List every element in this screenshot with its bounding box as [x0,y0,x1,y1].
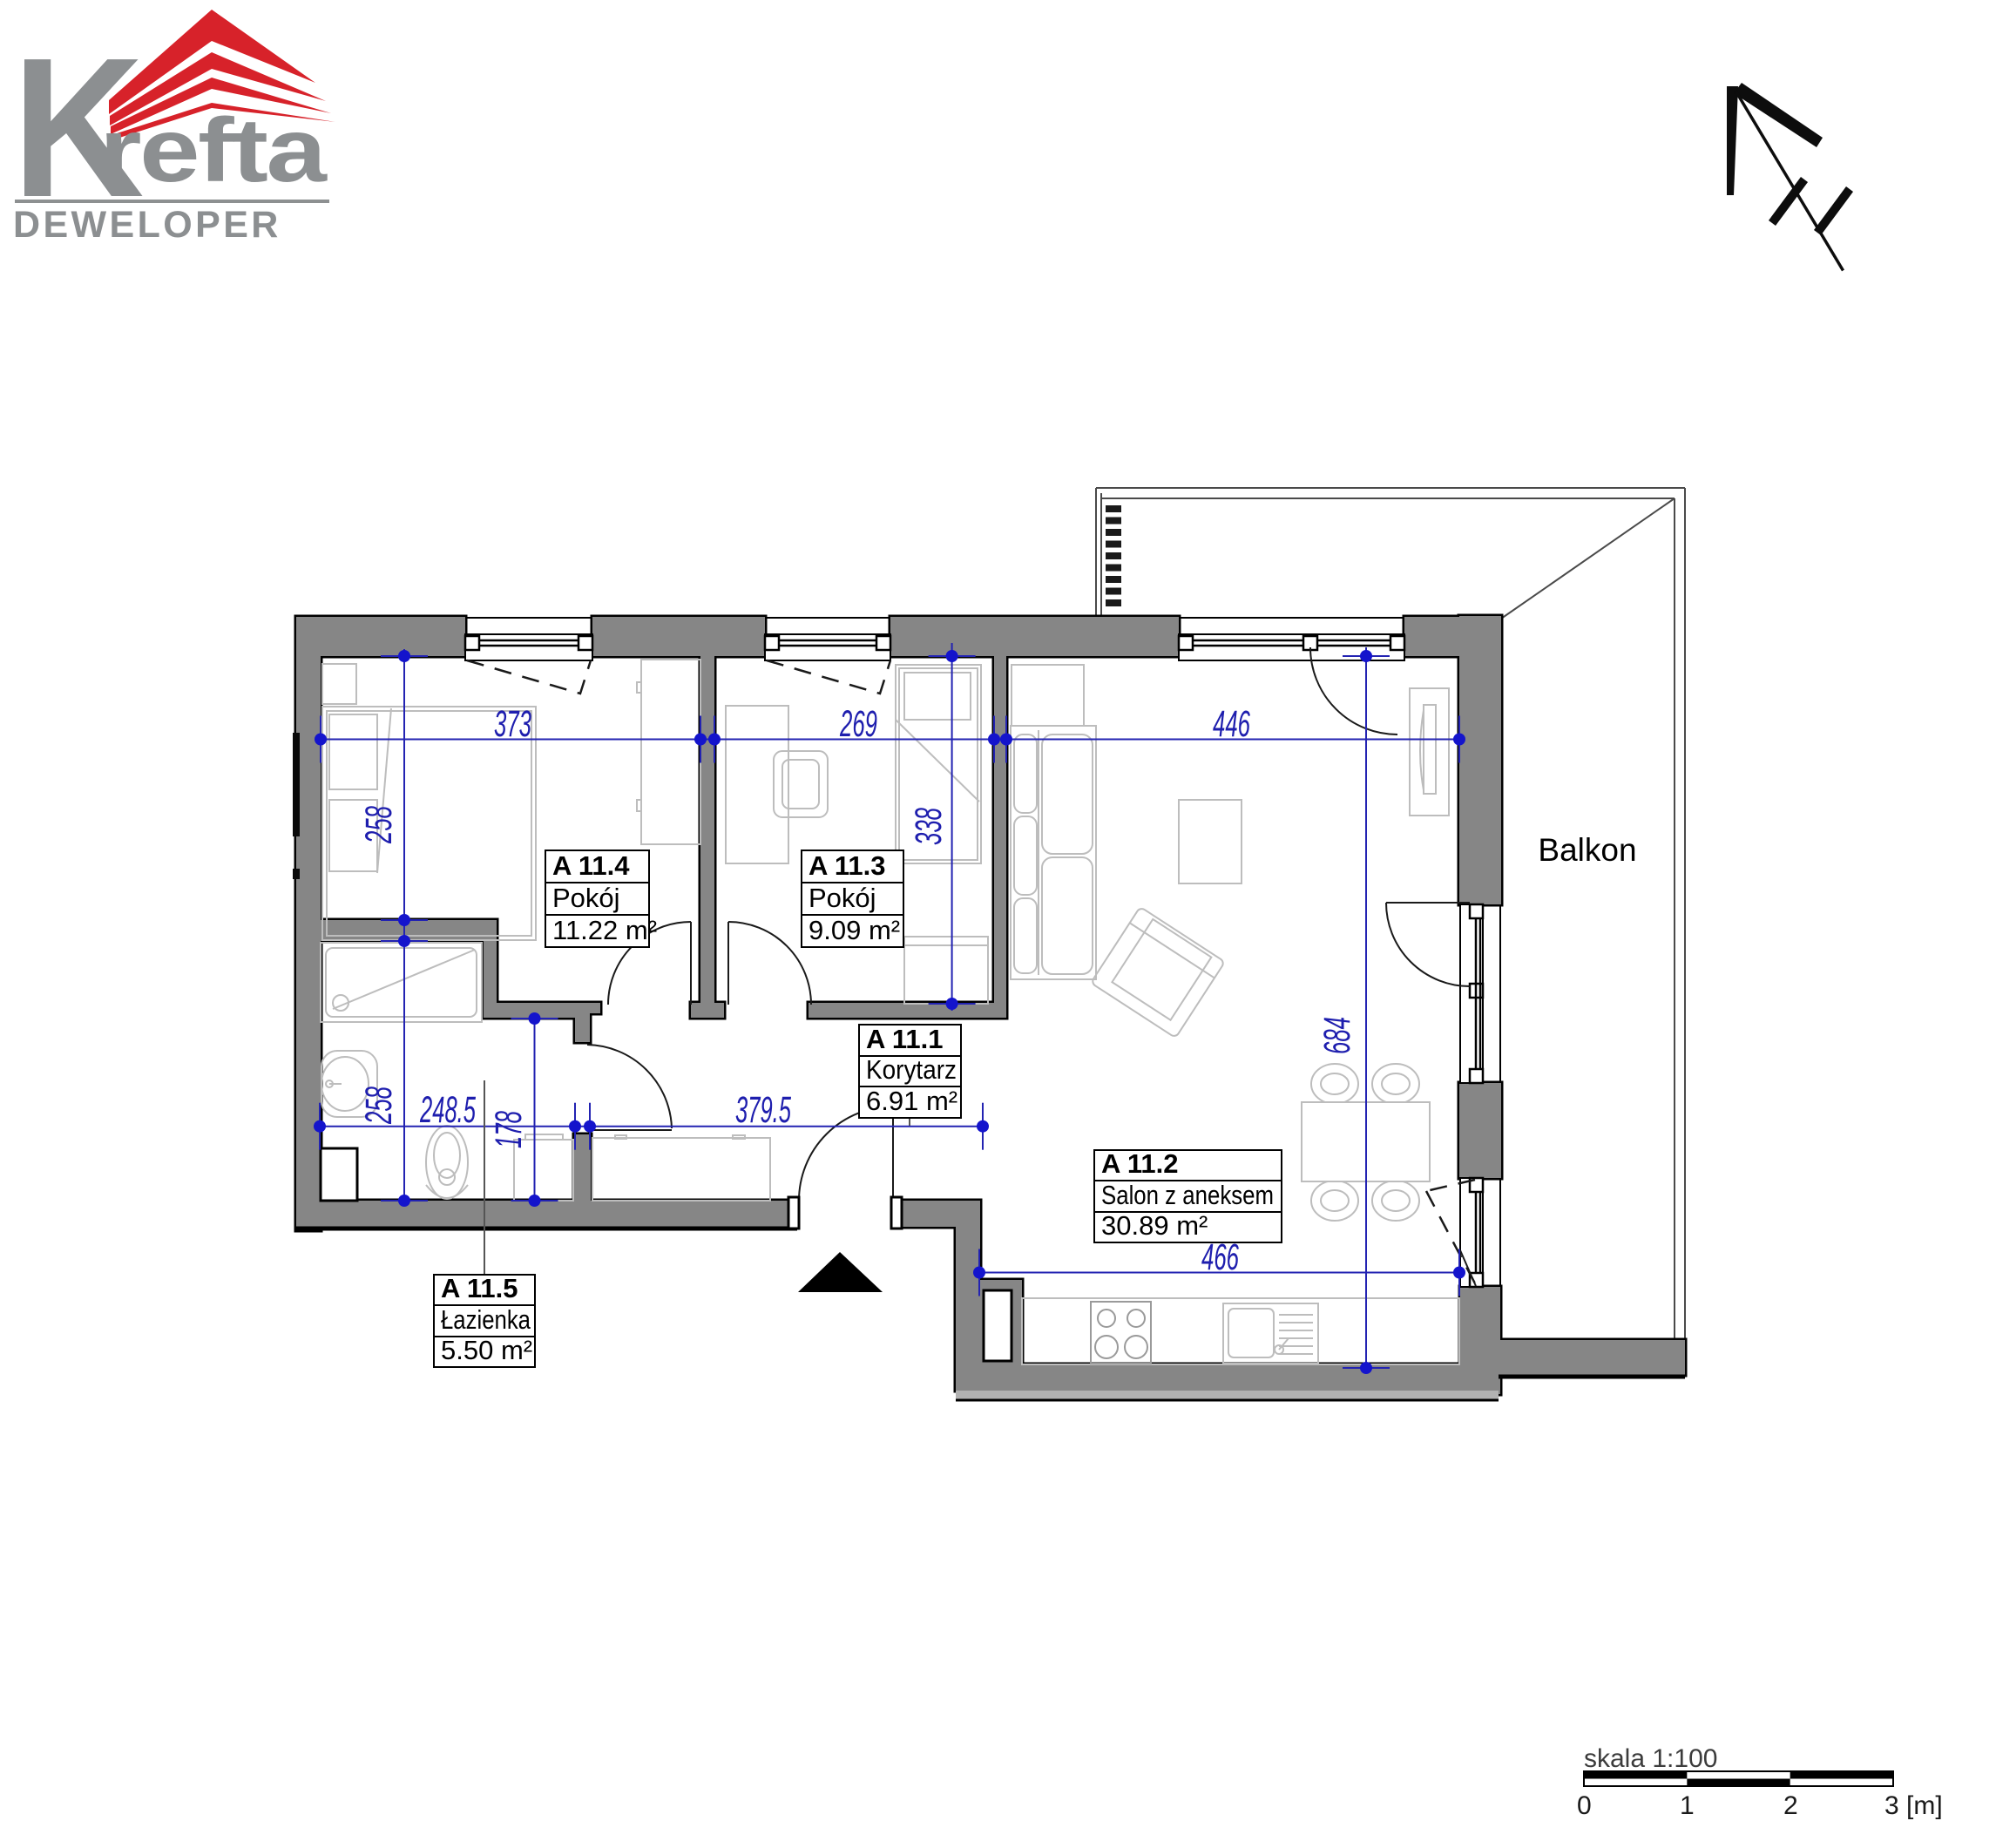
svg-text:A 11.2: A 11.2 [1101,1148,1178,1179]
svg-text:30.89 m²: 30.89 m² [1101,1210,1208,1241]
svg-text:Salon z aneksem: Salon z aneksem [1101,1180,1274,1210]
svg-text:6.91 m²: 6.91 m² [866,1086,957,1116]
svg-text:269: 269 [839,703,877,745]
svg-text:Korytarz: Korytarz [866,1054,957,1085]
svg-text:refta: refta [99,100,328,201]
svg-text:258: 258 [358,1086,400,1125]
svg-text:5.50 m²: 5.50 m² [441,1335,532,1365]
svg-text:A 11.1: A 11.1 [866,1024,943,1054]
svg-text:Pokój: Pokój [809,883,876,913]
svg-text:9.09 m²: 9.09 m² [809,915,900,945]
svg-text:3 [m]: 3 [m] [1884,1791,1943,1820]
svg-text:skala 1:100: skala 1:100 [1584,1744,1717,1773]
svg-text:258: 258 [358,806,400,844]
svg-text:446: 446 [1213,703,1250,745]
svg-text:A 11.3: A 11.3 [809,850,885,881]
svg-text:A 11.4: A 11.4 [552,850,630,881]
svg-text:DEWELOPER: DEWELOPER [13,204,281,246]
svg-text:178: 178 [488,1111,530,1148]
svg-text:0: 0 [1577,1791,1592,1820]
svg-text:Łazienka: Łazienka [441,1304,531,1335]
svg-text:684: 684 [1316,1017,1358,1054]
svg-text:2: 2 [1783,1791,1798,1820]
svg-text:Balkon: Balkon [1538,832,1636,868]
svg-text:1: 1 [1680,1791,1695,1820]
svg-text:11.22 m²: 11.22 m² [552,915,657,945]
svg-text:373: 373 [494,703,531,745]
svg-text:338: 338 [908,808,950,845]
svg-text:A 11.5: A 11.5 [441,1273,518,1303]
svg-text:Pokój: Pokój [552,883,620,913]
svg-text:379.5: 379.5 [735,1089,792,1131]
svg-text:248.5: 248.5 [419,1089,476,1131]
